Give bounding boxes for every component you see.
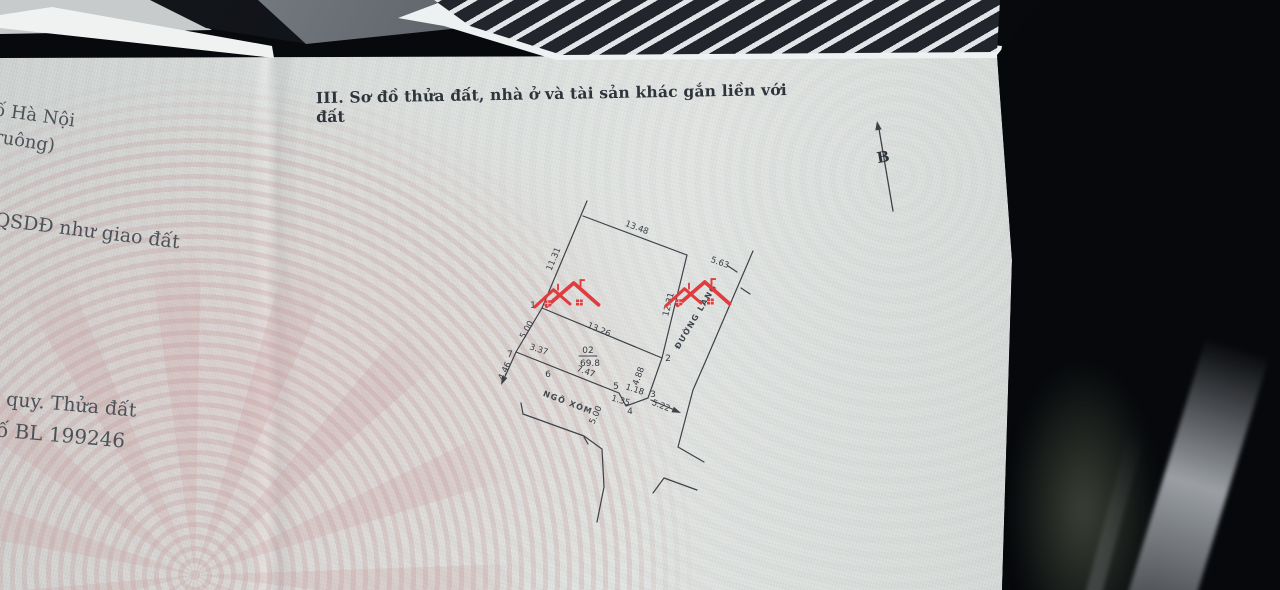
- point-4: 4: [627, 407, 633, 417]
- road-tick-1: [728, 266, 737, 272]
- road-tick-2: [741, 288, 750, 294]
- dim-front-top: 13.26: [586, 321, 612, 340]
- point-5: 5: [613, 382, 619, 392]
- point-7: 7: [507, 350, 513, 360]
- dim-bottom-1: 3.37: [528, 342, 549, 357]
- parcel-boundary-lines: [503, 129, 893, 522]
- dim-right-lower: 4.88: [631, 366, 647, 387]
- dim-left-upper: 11.31: [545, 246, 564, 272]
- dim-bottom-3: 5.22: [650, 398, 671, 414]
- parcel-area: 69.8: [580, 359, 600, 369]
- dim-top: 13.48: [624, 219, 650, 237]
- point-2: 2: [665, 354, 671, 364]
- point-3: 3: [650, 390, 656, 400]
- parcel-number: 02: [582, 346, 593, 356]
- intersection-corner: [653, 478, 697, 493]
- plot-diagram: 11.31 13.48 12.31 5.63 13.26 5.00 3.37 7…: [0, 0, 1280, 590]
- photo-of-land-certificate: III. Sơ đồ thửa đất, nhà ở và tài sản kh…: [0, 0, 1280, 590]
- dim-road-segment: 5.63: [709, 255, 730, 271]
- north-arrow-line: [879, 129, 893, 211]
- north-arrowhead: [875, 121, 881, 131]
- dim-ext-left: 4.46: [497, 360, 514, 381]
- arrowhead-5-22: [672, 407, 682, 413]
- north-label: B: [875, 147, 891, 167]
- point-6: 6: [545, 370, 551, 380]
- alley-label: NGÕ XÓM: [542, 387, 595, 416]
